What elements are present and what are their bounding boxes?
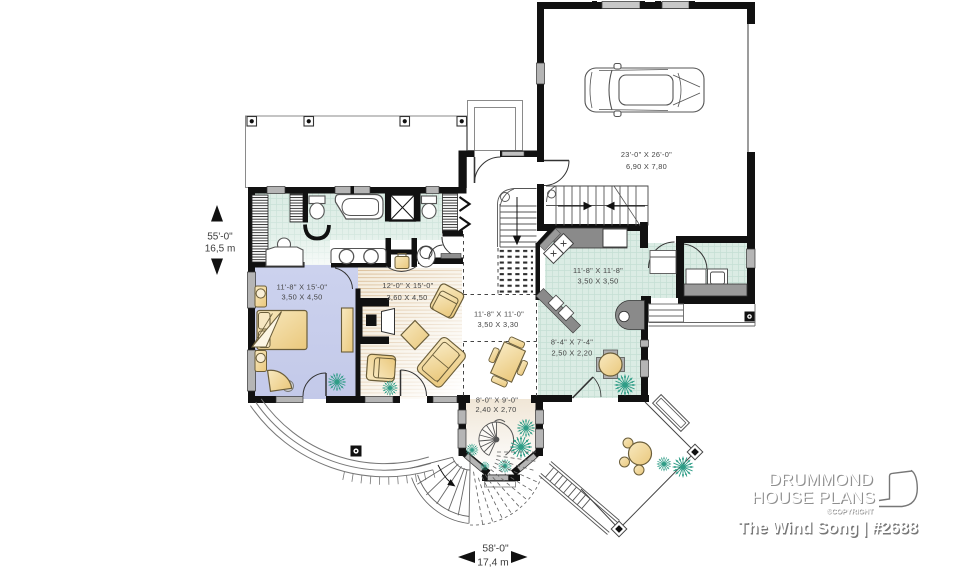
svg-text:23'-0" X 26'-0": 23'-0" X 26'-0" — [621, 150, 672, 159]
svg-text:8'-4" X 7'-4": 8'-4" X 7'-4" — [551, 338, 593, 347]
svg-text:16,5 m: 16,5 m — [205, 244, 236, 255]
svg-text:3,50 X 3,30: 3,50 X 3,30 — [477, 320, 518, 329]
svg-text:58'-0": 58'-0" — [482, 544, 509, 555]
svg-text:11'-8" X 15'-0": 11'-8" X 15'-0" — [277, 283, 328, 292]
svg-text:3,60 X 4,50: 3,60 X 4,50 — [386, 293, 427, 302]
svg-text:©COPYRIGHT: ©COPYRIGHT — [827, 508, 874, 516]
svg-text:3,50 X 4,50: 3,50 X 4,50 — [281, 293, 322, 302]
svg-text:55'-0": 55'-0" — [207, 232, 233, 243]
svg-text:2,50 X 2,20: 2,50 X 2,20 — [551, 349, 592, 358]
svg-text:12'-0" X 15'-0": 12'-0" X 15'-0" — [382, 281, 433, 290]
svg-text:DRUMMOND: DRUMMOND — [768, 470, 873, 489]
svg-text:2,40 X 2,70: 2,40 X 2,70 — [475, 405, 516, 414]
svg-text:11'-8" X 11'-0": 11'-8" X 11'-0" — [474, 310, 524, 319]
svg-text:17,4 m: 17,4 m — [477, 558, 508, 569]
svg-text:6,90 X 7,80: 6,90 X 7,80 — [626, 162, 667, 171]
svg-text:3,50 X 3,50: 3,50 X 3,50 — [577, 277, 618, 286]
svg-text:8'-0" X 9'-0": 8'-0" X 9'-0" — [476, 396, 518, 405]
svg-text:11'-8" X 11'-8": 11'-8" X 11'-8" — [573, 266, 623, 275]
svg-text:The Wind Song | #2688: The Wind Song | #2688 — [738, 519, 918, 537]
svg-text:HOUSE PLANS: HOUSE PLANS — [752, 488, 875, 507]
